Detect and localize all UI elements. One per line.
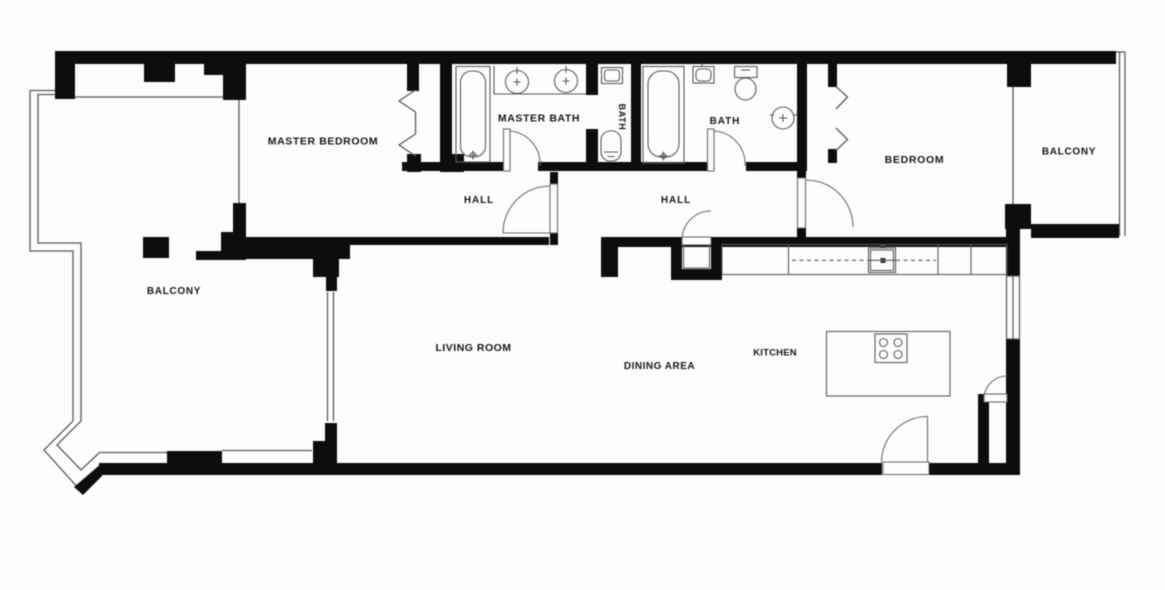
- svg-text:BATH: BATH: [710, 116, 741, 127]
- svg-text:BATH: BATH: [617, 104, 627, 131]
- svg-text:HALL: HALL: [464, 195, 494, 206]
- svg-text:MASTER BEDROOM: MASTER BEDROOM: [268, 136, 378, 148]
- svg-text:LIVING ROOM: LIVING ROOM: [435, 342, 511, 354]
- svg-text:HALL: HALL: [661, 195, 691, 206]
- svg-text:DINING AREA: DINING AREA: [624, 361, 695, 372]
- svg-text:KITCHEN: KITCHEN: [753, 348, 797, 359]
- svg-text:BALCONY: BALCONY: [147, 286, 201, 297]
- svg-text:BEDROOM: BEDROOM: [885, 154, 945, 166]
- svg-text:BALCONY: BALCONY: [1042, 147, 1096, 158]
- svg-text:MASTER BATH: MASTER BATH: [498, 113, 580, 125]
